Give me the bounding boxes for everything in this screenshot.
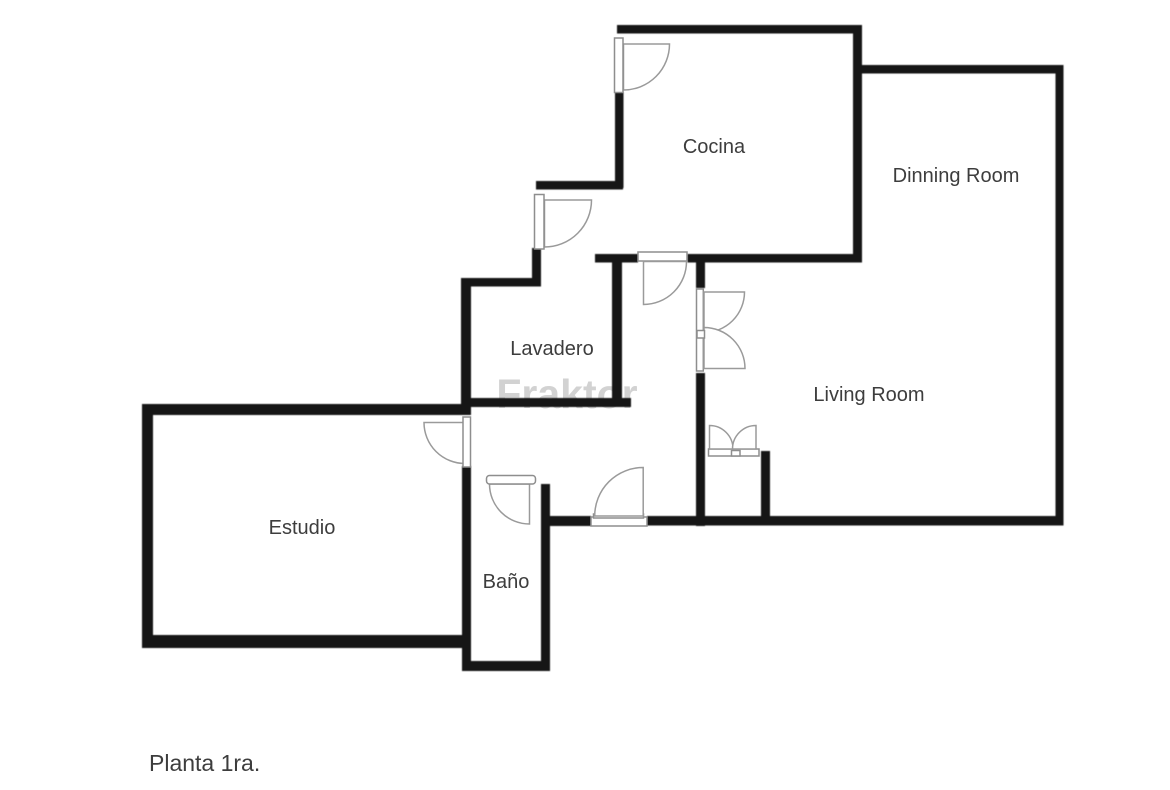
svg-text:Cocina: Cocina — [683, 136, 746, 158]
svg-text:Dinning Room: Dinning Room — [893, 165, 1020, 187]
svg-text:Baño: Baño — [483, 571, 530, 593]
svg-text:Estudio: Estudio — [269, 517, 336, 539]
svg-text:Living Room: Living Room — [813, 384, 924, 406]
svg-text:Lavadero: Lavadero — [510, 338, 593, 360]
svg-text:Planta 1ra.: Planta 1ra. — [149, 750, 260, 776]
